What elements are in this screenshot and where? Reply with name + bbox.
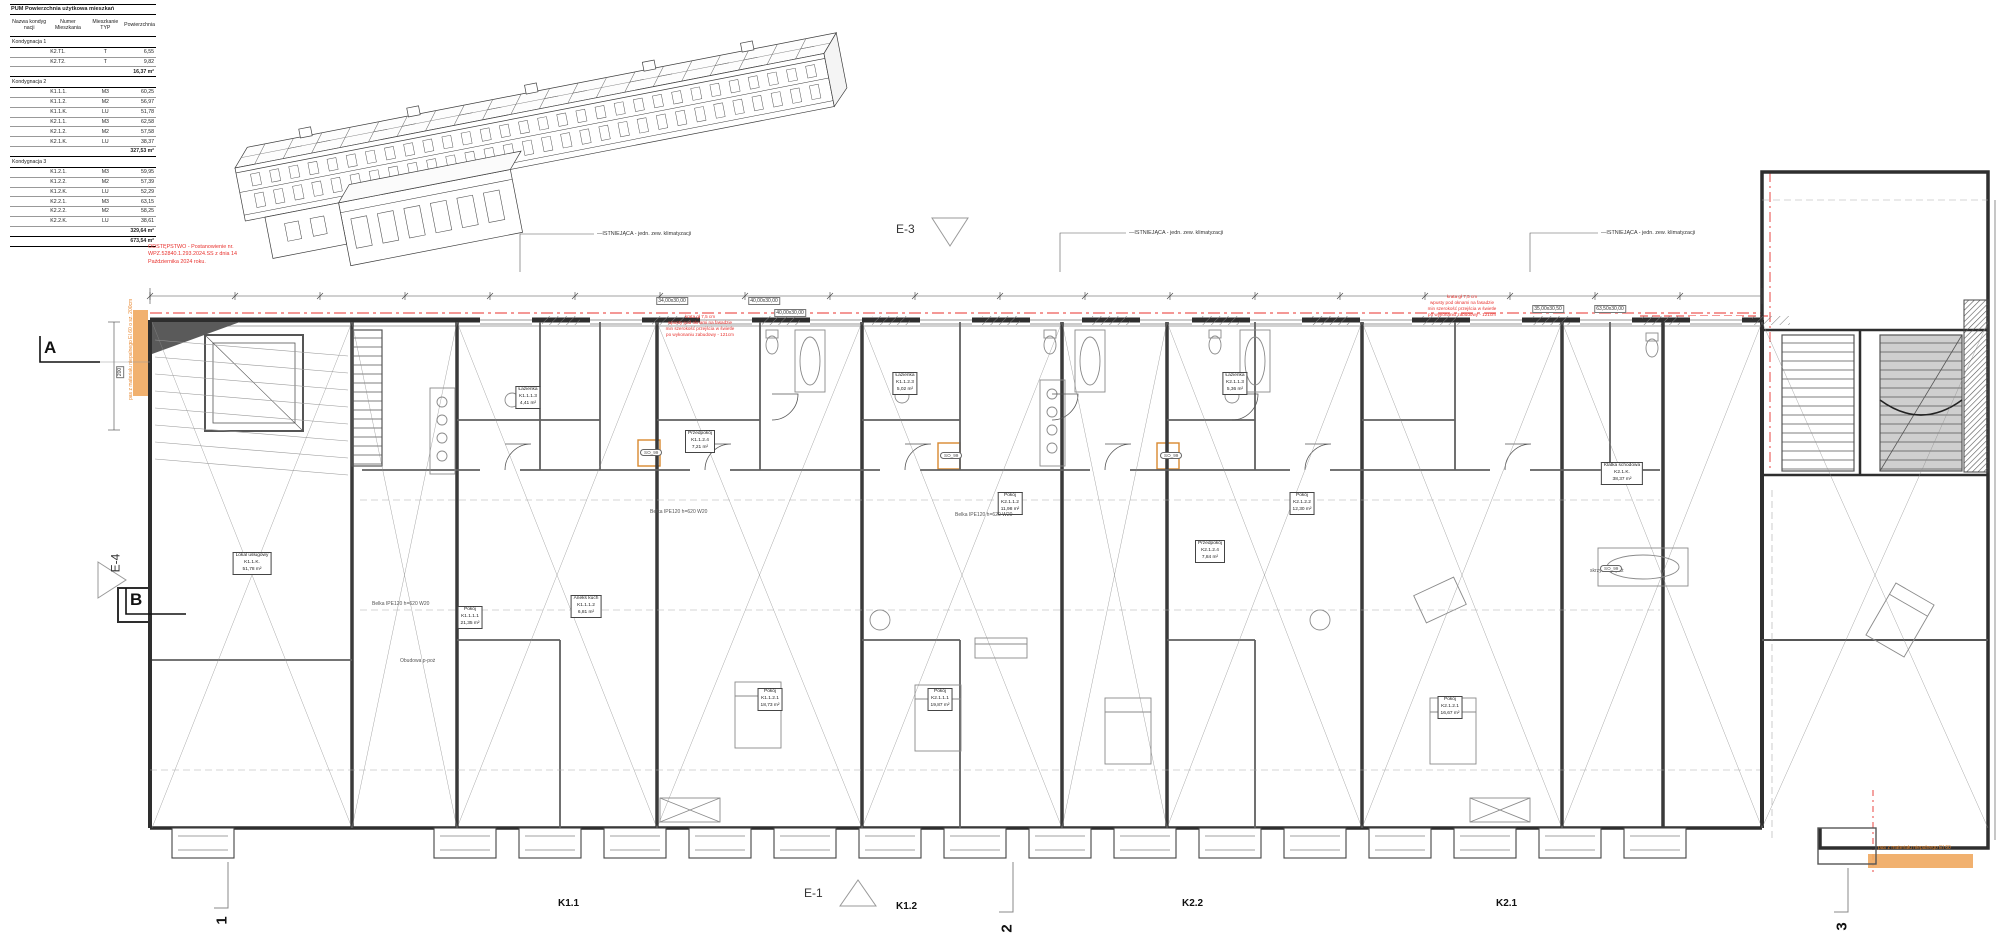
staircase-unit-label: K2.1 [1496,898,1517,909]
grid-marker-1: 1 [214,916,231,924]
table-row: K2.2.K.LU38,61 [10,217,156,227]
dimension-box-label: 63,50x30,00 [1594,305,1626,313]
grid-marker-2: 2 [999,924,1016,932]
section-marker-b: B [130,590,142,610]
room-label: ŁazienkaK1.1.1.34,41 m² [515,386,540,409]
table-row: K1.1.1.M360,25 [10,87,156,97]
element-tag: SO_99 [1160,452,1182,459]
col-powierzchnia: Powierzchnia [123,15,156,37]
existing-ac-note: —ISTNIEJĄCA - jedn. zew. klimatyzacji [1129,230,1223,236]
area-table-header-row: Nazwa kondyg nacji Numer Mieszkania Mies… [10,15,156,37]
dimension-chains [108,200,1995,840]
architectural-floor-plan-sheet: PUM Powierzchnia użytkowa mieszkań Nazwa… [0,0,2000,952]
axonometric-view [230,25,862,284]
col-typ: Mieszkanie TYP [88,15,124,37]
floor-plan-linework [0,0,2000,952]
elevation-marker-e4: E-4 [108,554,122,573]
room-label: Klatka schodowaK2.1.K.38,37 m² [1601,462,1643,485]
table-group-row: Kondygnacja 2 [10,77,156,88]
odstepstwo-note: ODSTĘPSTWO - Postanowienie nr.WPZ.52840.… [148,244,237,266]
room-label: Lokal usługowyK1.1.K.51,78 m² [233,552,272,575]
diagonal-reference-lines [152,322,1988,828]
left-dimension-value: 200 [116,366,124,378]
door-swings [505,394,1531,470]
elevation-marker-e3: E-3 [896,222,915,236]
room-label: PokójK2.1.2.212,30 m² [1290,492,1315,515]
unit-division-walls [352,322,1663,828]
section-marker-a: A [44,338,56,358]
table-row: K2.1.1.M362,58 [10,117,156,127]
existing-ac-note: —ISTNIEJĄCA - jedn. zew. klimatyzacji [1601,230,1695,236]
bottom-window-bays [172,828,1686,858]
grid-marker-3: 3 [1834,922,1851,930]
table-row: K2.T2.T9,82 [10,57,156,67]
element-tag: SO_99 [940,452,962,459]
dimension-box-label: 40,00x30,00 [748,297,780,305]
stair-wing [1782,335,1962,471]
staircase-unit-label: K2.2 [1182,898,1203,909]
room-label: ŁazienkaK2.1.1.35,36 m² [1222,372,1247,395]
room-label: PokójK1.1.1.121,35 m² [458,606,483,629]
table-row: K2.T1.T6,55 [10,47,156,57]
table-row: K1.2.K.LU52,29 [10,187,156,197]
technical-label: Belka IPE120 h=620 W20 [372,601,429,607]
room-label: ŁazienkaK1.1.2.35,02 m² [892,372,917,395]
technical-label: Belka IPE120 h=620 W20 [650,509,707,515]
staircase-unit-label: K1.1 [558,898,579,909]
table-row: K1.2.1.M359,95 [10,167,156,177]
table-total-row: 673,54 m² [10,236,156,246]
exterior-walls [118,172,1988,864]
element-tag: SO_99 [640,449,662,456]
dimension-box-label: 35,00x30,50 [1532,305,1564,313]
table-subtotal-row: 327,53 m² [10,147,156,157]
table-group-row: Kondygnacja 1 [10,36,156,47]
room-label: PokójK2.1.1.119,87 m² [928,688,953,711]
table-row: K1.2.2.M257,39 [10,177,156,187]
fire-strip-note-left: pas z materiału niepalnego EI 60 o sz. 2… [128,299,134,400]
table-subtotal-row: 329,64 m² [10,227,156,237]
table-row: K1.1.K.LU51,78 [10,107,156,117]
area-table-title: PUM Powierzchnia użytkowa mieszkań [10,4,156,15]
fire-separation-lines [150,172,1873,872]
staircase-unit-label: K1.2 [896,901,917,912]
table-subtotal-row: 16,37 m² [10,67,156,77]
existing-ac-note: —ISTNIEJĄCA - jedn. zew. klimatyzacji [597,231,691,237]
col-numer: Numer Mieszkania [48,15,87,37]
elevation-marker-e1: E-1 [804,886,823,900]
room-label: PrzedpokójK1.1.2.47,21 m² [685,430,715,453]
technical-label: Belka IPE120 h=620 W20 [955,512,1012,518]
partition-walls [152,322,1660,828]
table-row: K2.2.1.M363,15 [10,197,156,207]
dimension-box-label: 40,00x30,00 [774,309,806,317]
red-annotation: krata gł 7,5 cmwpusty pod oknami na fasa… [666,314,735,338]
table-row: K2.1.2.M257,58 [10,127,156,137]
table-group-row: Kondygnacja 3 [10,157,156,168]
table-row: K2.2.2.M258,25 [10,207,156,217]
element-tag: SO_99 [1600,565,1622,572]
dimension-box-label: 34,00x30,00 [656,297,688,305]
table-row: K1.1.2.M256,97 [10,97,156,107]
technical-label: Obudowa p-poż [400,658,435,664]
room-label: PokójK1.1.2.118,73 m² [758,688,783,711]
stair-left [155,330,382,475]
red-annotation: krata gł 7,5 cmwpusty pod oknami na fasa… [1428,294,1497,318]
fire-strip-note-right: pas z materiału niepalnego EI 60 [1878,845,1951,851]
table-row: K2.1.K.LU38,37 [10,137,156,147]
ac-leaders [520,233,1598,272]
area-table: PUM Powierzchnia użytkowa mieszkań Nazwa… [10,4,156,247]
room-label: PokójK2.1.2.116,67 m² [1438,696,1463,719]
room-label: Aneks kuchK1.1.1.26,81 m² [571,595,602,618]
room-label: PrzedpokójK2.1.2.47,84 m² [1195,540,1225,563]
col-kondygnacja: Nazwa kondyg nacji [10,15,48,37]
